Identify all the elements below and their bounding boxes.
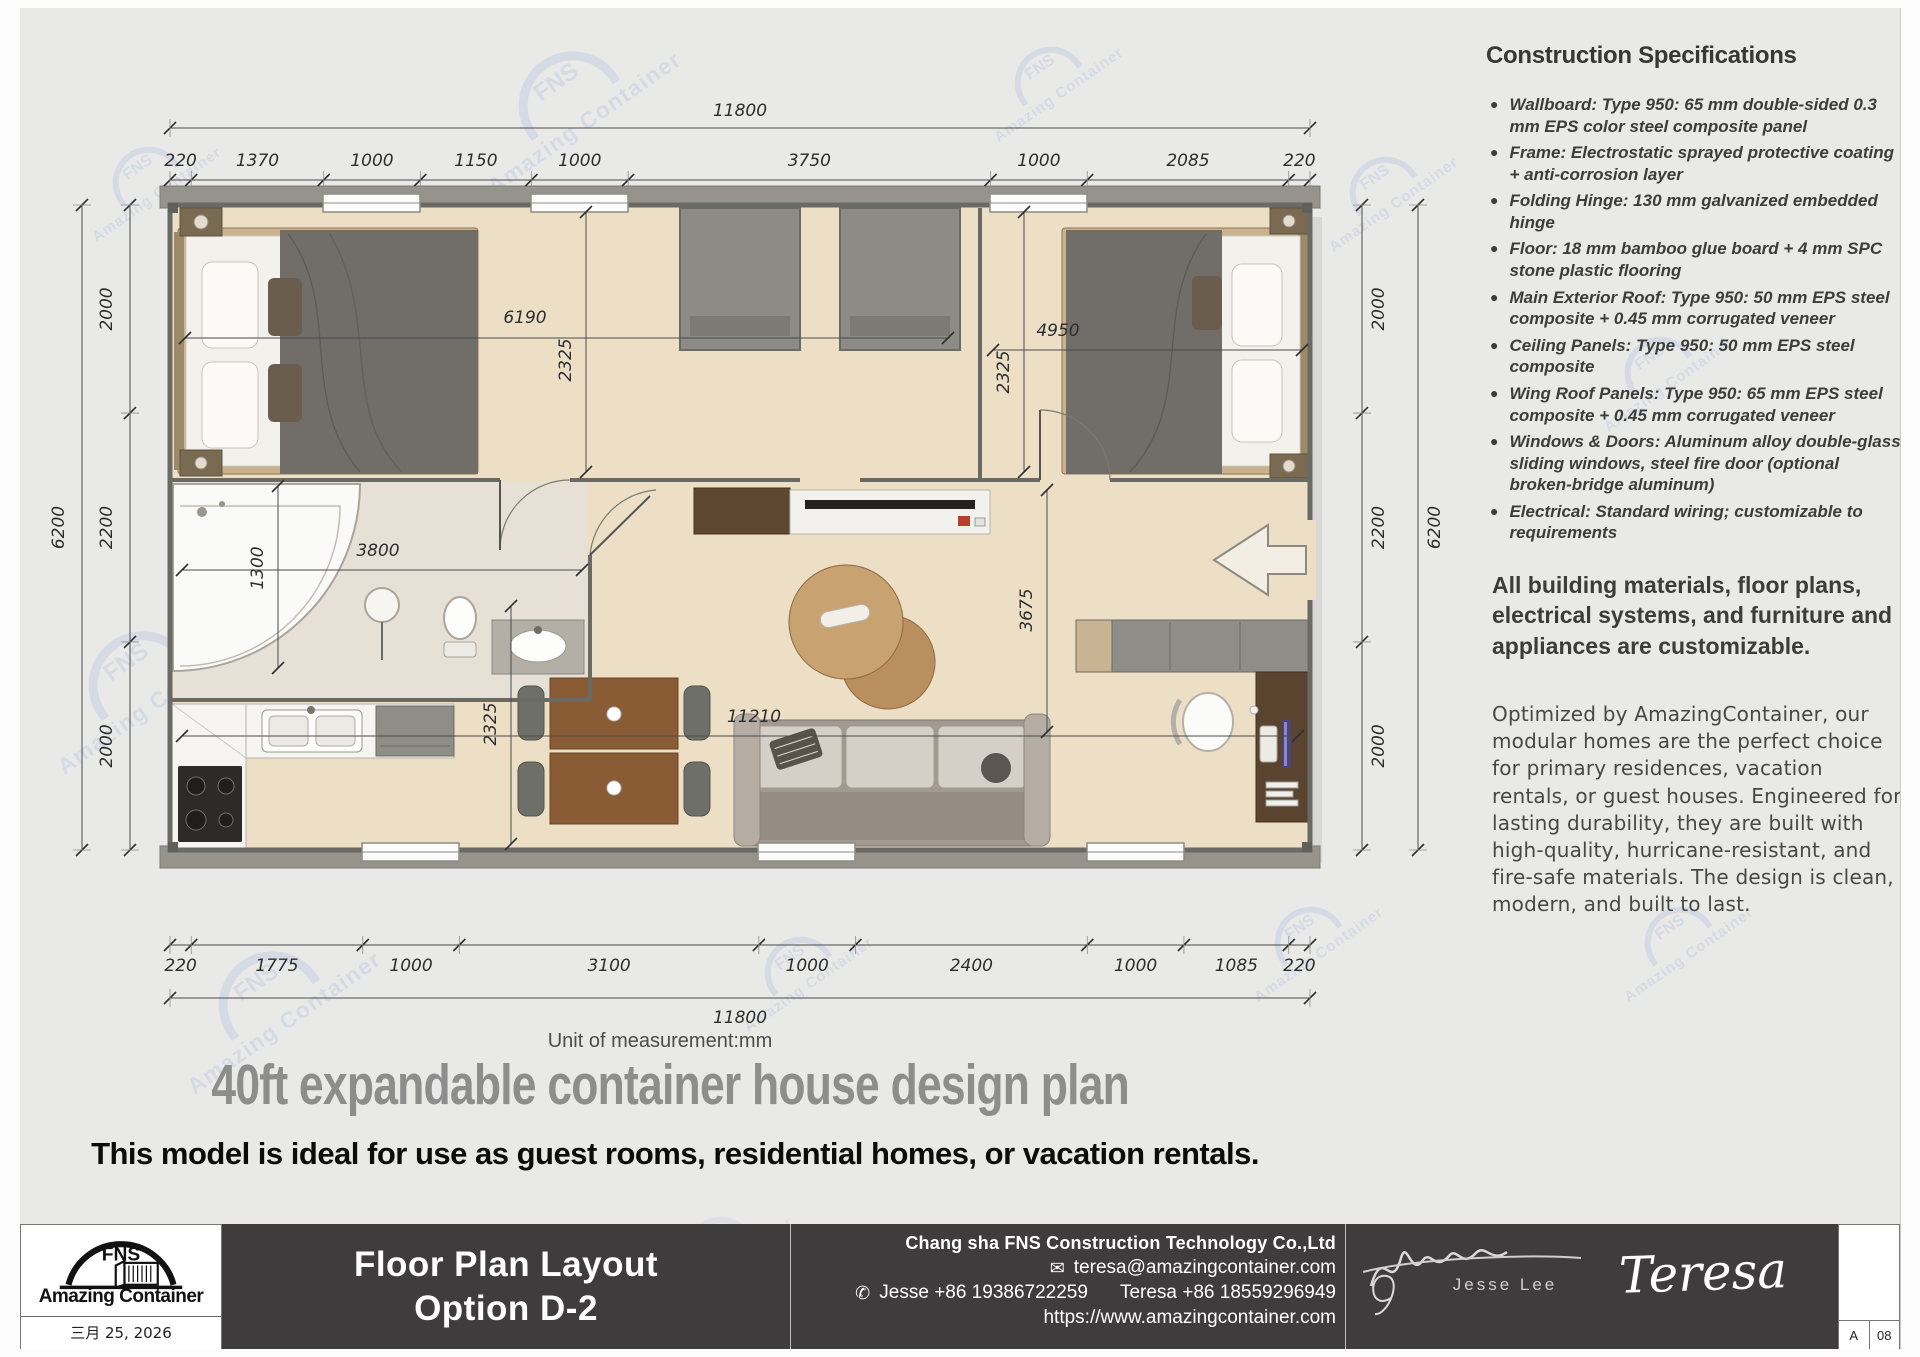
phone-teresa: Teresa +86 18559296949 (1120, 1282, 1336, 1304)
specs-heading: Construction Specifications (1486, 42, 1901, 70)
svg-text:1000: 1000 (350, 151, 393, 171)
revision-box: A 08 (1838, 1224, 1900, 1349)
svg-text:3675: 3675 (1017, 588, 1037, 631)
svg-text:1000: 1000 (1017, 151, 1060, 171)
svg-text:220: 220 (164, 956, 196, 976)
svg-text:2085: 2085 (1166, 151, 1209, 171)
svg-text:2325: 2325 (556, 338, 576, 381)
phone-line: ✆ Jesse +86 19386722259 Teresa +86 18559… (855, 1282, 1336, 1304)
specs-list: ●Wallboard: Type 950: 65 mm double-sided… (1482, 94, 1901, 544)
bullet-icon: ● (1490, 240, 1498, 281)
company-logo-box: FNS Amazing Container 三月 25, 2026 (20, 1224, 222, 1349)
svg-text:1300: 1300 (248, 546, 268, 589)
svg-text:1000: 1000 (786, 956, 829, 976)
title-block-band: Floor Plan Layout Option D-2 Chang sha F… (222, 1224, 1838, 1349)
construction-specs: Construction Specifications ●Wallboard: … (1482, 42, 1901, 919)
bullet-icon: ● (1490, 192, 1498, 233)
website-url[interactable]: https://www.amazingcontainer.com (1043, 1307, 1336, 1329)
signature-zone: Jesse Lee Teresa (1345, 1224, 1838, 1349)
sheet-date: 三月 25, 2026 (21, 1316, 221, 1348)
svg-text:6190: 6190 (503, 308, 546, 328)
svg-text:6200: 6200 (1425, 506, 1445, 549)
revision-cells: A 08 (1839, 1320, 1899, 1349)
dim-chain-bottom: 2201775100031001000240010001085220 (164, 936, 1316, 976)
svg-text:2325: 2325 (994, 350, 1014, 393)
bullet-icon: ● (1490, 96, 1498, 137)
page-title: 40ft expandable container house design p… (20, 1052, 1320, 1118)
bullet-icon: ● (1490, 385, 1498, 426)
spec-item: ●Floor: 18 mm bamboo glue board + 4 mm S… (1482, 238, 1901, 281)
divider (790, 1224, 791, 1349)
svg-text:1000: 1000 (558, 151, 601, 171)
svg-text:3100: 3100 (587, 956, 630, 976)
stove (178, 766, 242, 842)
svg-text:1000: 1000 (389, 956, 432, 976)
signature-scribble-icon: Jesse Lee (1357, 1228, 1587, 1320)
svg-text:3800: 3800 (356, 541, 399, 561)
sheet-title: Floor Plan Layout Option D-2 (222, 1224, 790, 1349)
desk (1250, 672, 1310, 822)
svg-text:Jesse Lee: Jesse Lee (1453, 1275, 1558, 1294)
spec-item: ●Frame: Electrostatic sprayed protective… (1482, 142, 1901, 185)
svg-text:1775: 1775 (255, 956, 298, 976)
svg-text:3750: 3750 (788, 151, 831, 171)
company-logo: FNS Amazing Container (21, 1225, 221, 1316)
spec-item: ●Ceiling Panels: Type 950: 50 mm EPS ste… (1482, 335, 1901, 378)
svg-text:2325: 2325 (481, 702, 501, 745)
contact-block: Chang sha FNS Construction Technology Co… (808, 1233, 1336, 1329)
bullet-icon: ● (1490, 337, 1498, 378)
marketing-note: Optimized by AmazingContainer, our modul… (1482, 701, 1901, 919)
bed-left (174, 208, 478, 476)
svg-text:6200: 6200 (49, 506, 69, 549)
page-subtitle: This model is ideal for use as guest roo… (20, 1136, 1330, 1172)
dim-overall-left: 6200 (49, 199, 91, 856)
svg-text:11800: 11800 (713, 101, 767, 121)
svg-text:1150: 1150 (454, 151, 497, 171)
fns-arch-logo-icon: FNS (41, 1234, 201, 1290)
svg-text:1000: 1000 (1114, 956, 1157, 976)
svg-text:4950: 4950 (1036, 321, 1079, 341)
spec-item: ●Main Exterior Roof: Type 950: 50 mm EPS… (1482, 287, 1901, 330)
title-block: FNS Amazing Container 三月 25, 2026 Floor … (20, 1224, 1900, 1349)
svg-text:2000: 2000 (1369, 287, 1389, 330)
engineer-signature: Jesse Lee (1357, 1228, 1587, 1325)
svg-text:2400: 2400 (950, 956, 993, 976)
customizable-note: All building materials, floor plans, ele… (1482, 570, 1901, 661)
wardrobe (1076, 620, 1310, 672)
spec-item: ●Windows & Doors: Aluminum alloy double-… (1482, 431, 1901, 496)
floor-plan: 6190 2325 4950 2325 1300 3800 2325 11210 (30, 20, 1480, 1030)
bullet-icon: ● (1490, 503, 1498, 544)
dim-chain-right: 200022002000 (1353, 199, 1389, 856)
email-address[interactable]: teresa@amazingcontainer.com (1074, 1257, 1336, 1279)
spec-item: ●Folding Hinge: 130 mm galvanized embedd… (1482, 190, 1901, 233)
email-line: ✉ teresa@amazingcontainer.com (1050, 1257, 1336, 1279)
svg-text:11210: 11210 (727, 707, 781, 727)
tv-console (694, 488, 990, 534)
website-line: https://www.amazingcontainer.com (1043, 1307, 1336, 1329)
spec-item: ●Electrical: Standard wiring; customizab… (1482, 501, 1901, 544)
sofa (734, 714, 1050, 846)
logo-name: Amazing Container (39, 1286, 204, 1308)
sheet: FNSAmazing Container FNSAmazing Containe… (20, 8, 1901, 1349)
sales-signature: Teresa (1572, 1239, 1834, 1306)
svg-text:11800: 11800 (713, 1008, 767, 1028)
svg-text:2000: 2000 (97, 724, 117, 767)
revision-letter: A (1839, 1321, 1870, 1349)
sheet-title-line1: Floor Plan Layout (354, 1245, 658, 1285)
sheet-number: 08 (1870, 1321, 1900, 1349)
svg-text:2200: 2200 (97, 506, 117, 549)
dim-overall-bottom: 11800 (164, 989, 1316, 1028)
svg-text:220: 220 (164, 151, 196, 171)
vanity-sink (492, 620, 584, 674)
svg-text:220: 220 (1283, 956, 1315, 976)
svg-text:2000: 2000 (97, 287, 117, 330)
unit-note: Unit of measurement:mm (360, 1030, 960, 1053)
toilet (444, 597, 476, 657)
dim-overall-top: 11800 (164, 101, 1316, 137)
svg-text:1370: 1370 (236, 151, 279, 171)
svg-text:2200: 2200 (1369, 506, 1389, 549)
dim-chain-top: 2201370100011501000375010002085220 (164, 151, 1316, 189)
design-sheet-page: FNSAmazing Container FNSAmazing Containe… (0, 0, 1920, 1357)
bullet-icon: ● (1490, 144, 1498, 185)
dim-chain-left: 200022002000 (97, 199, 139, 856)
svg-text:220: 220 (1283, 151, 1315, 171)
bullet-icon: ● (1490, 289, 1498, 330)
email-icon: ✉ (1050, 1258, 1065, 1279)
bed-right (1062, 208, 1308, 478)
spec-item: ●Wing Roof Panels: Type 950: 65 mm EPS s… (1482, 383, 1901, 426)
dim-overall-right: 6200 (1409, 199, 1445, 856)
phone-jesse: Jesse +86 19386722259 (879, 1282, 1088, 1304)
company-name: Chang sha FNS Construction Technology Co… (905, 1233, 1336, 1254)
svg-text:2000: 2000 (1369, 724, 1389, 767)
sheet-title-line2: Option D-2 (414, 1289, 598, 1329)
svg-text:1085: 1085 (1215, 956, 1258, 976)
spec-item: ●Wallboard: Type 950: 65 mm double-sided… (1482, 94, 1901, 137)
bullet-icon: ● (1490, 433, 1498, 496)
phone-icon: ✆ (855, 1283, 870, 1304)
